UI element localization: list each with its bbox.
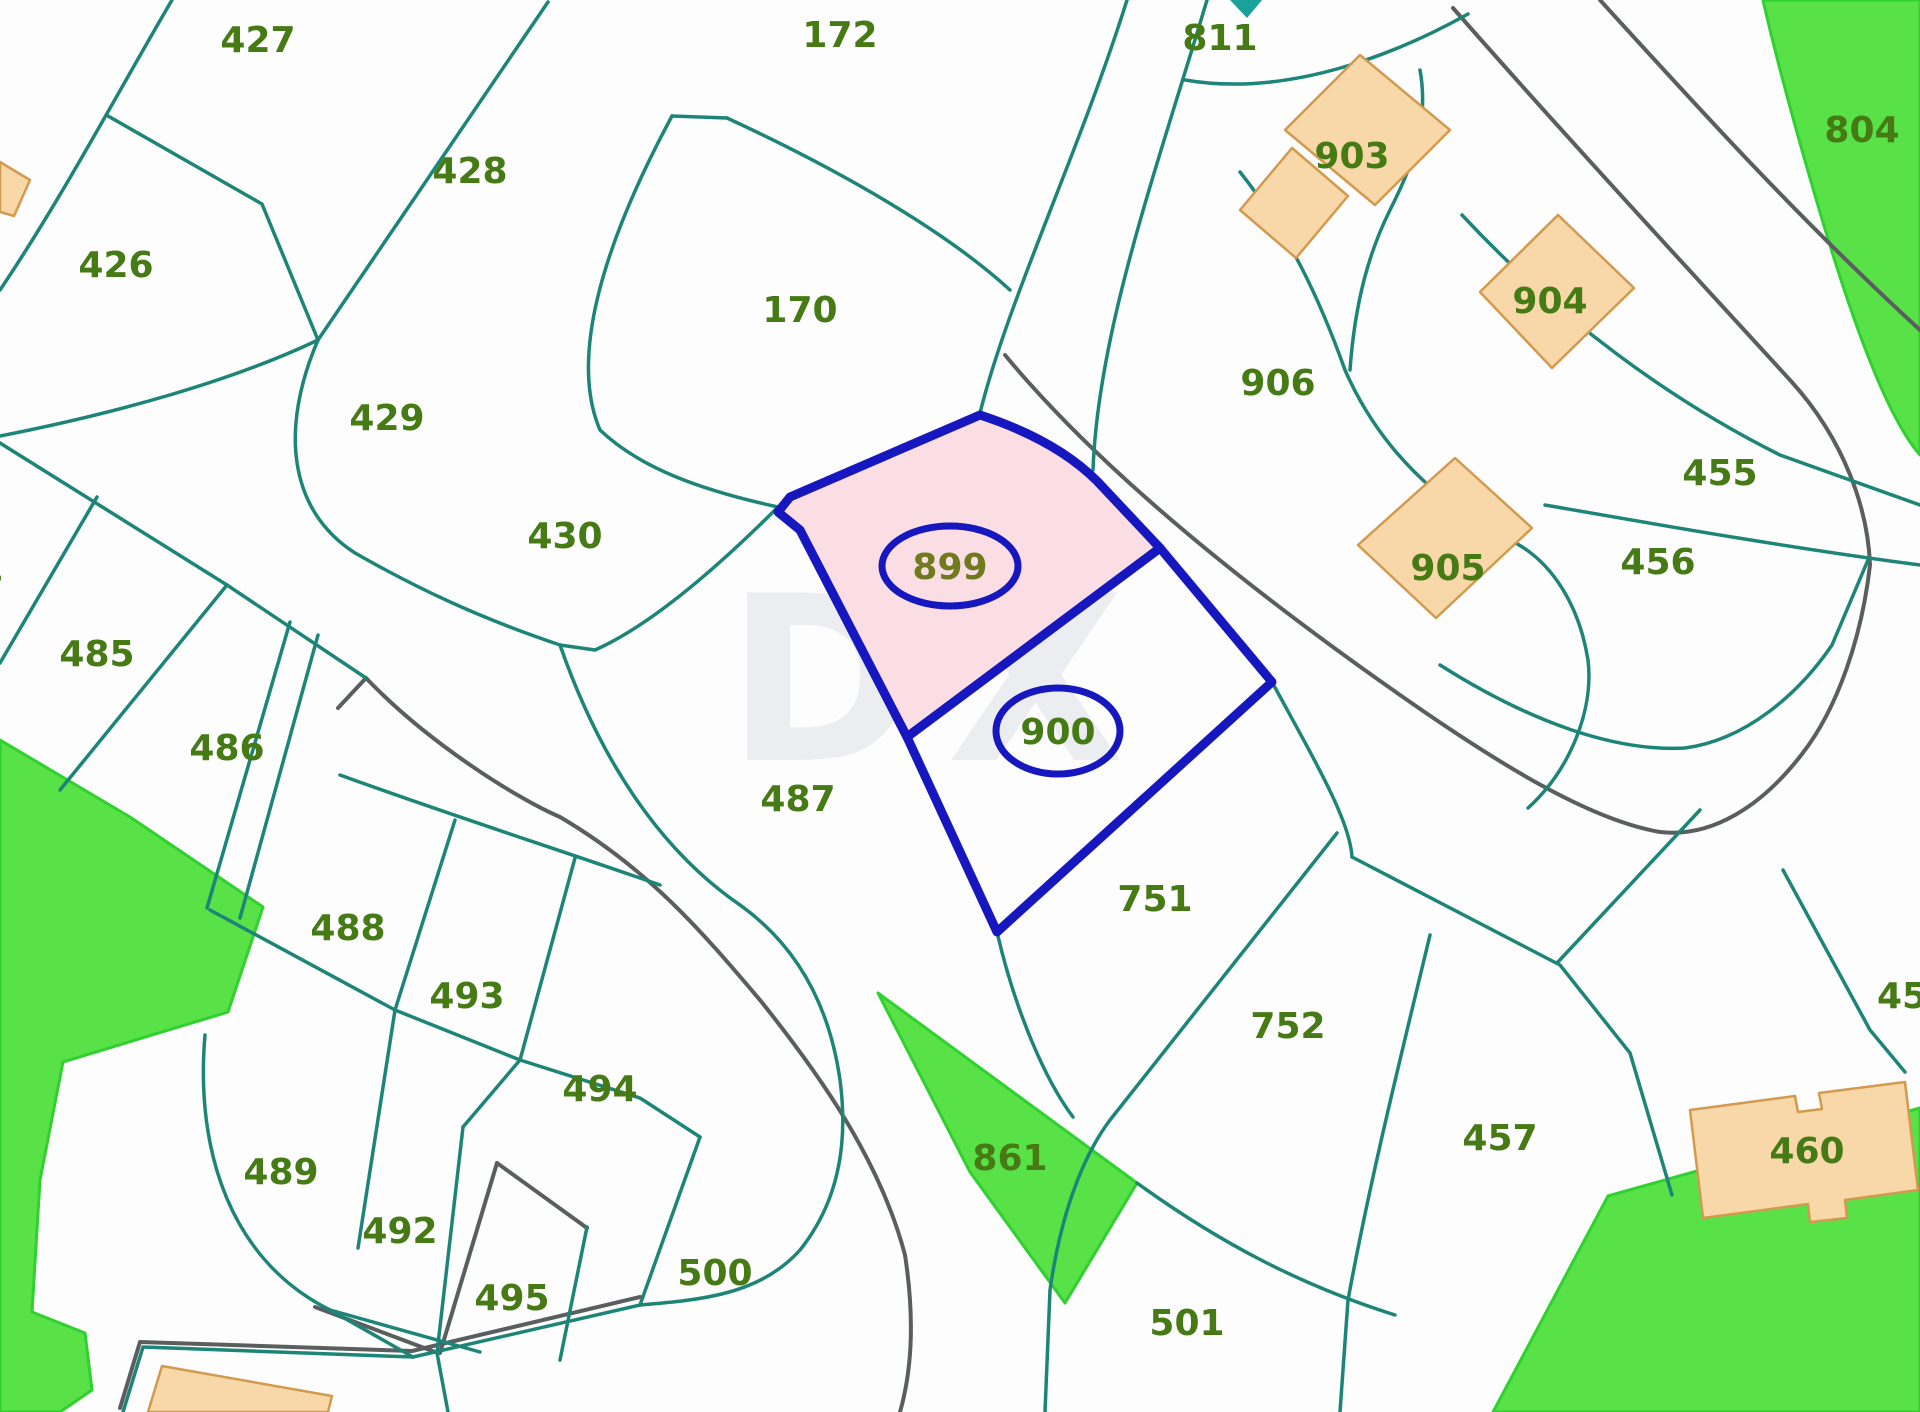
parcel-label-500: 500 [677, 1253, 752, 1294]
parcel-label-487: 487 [760, 779, 835, 820]
parcel-label-457: 457 [1462, 1118, 1537, 1159]
parcel-label-429: 429 [349, 398, 424, 439]
building-edge-left [0, 162, 30, 216]
parcel-label-172: 172 [802, 15, 877, 56]
parcel-label-485: 485 [59, 634, 134, 675]
parcel-label-4: 4 [0, 553, 3, 594]
parcel-label-488: 488 [310, 908, 385, 949]
parcel-label-811: 811 [1182, 18, 1257, 59]
parcel-label-751: 751 [1117, 879, 1192, 920]
parcel-label-804: 804 [1824, 110, 1899, 151]
building-edge-bottom [148, 1366, 332, 1412]
parcel-label-427: 427 [220, 20, 295, 61]
parcel-label-456: 456 [1620, 542, 1695, 583]
parcel-label-861: 861 [972, 1138, 1047, 1179]
parcel-label-501: 501 [1149, 1303, 1224, 1344]
parcel-label-45: 45 [1877, 976, 1920, 1017]
parcel-label-428: 428 [432, 151, 507, 192]
parcel-label-900: 900 [1020, 712, 1095, 753]
parcel-label-906: 906 [1240, 363, 1315, 404]
parcel-label-486: 486 [189, 728, 264, 769]
green-area-804 [1763, 0, 1920, 455]
parcel-label-493: 493 [429, 976, 504, 1017]
cadastral-map: DX 4271728114264289038049041704299064554… [0, 0, 1920, 1412]
parcel-label-904: 904 [1512, 281, 1587, 322]
parcel-label-170: 170 [762, 290, 837, 331]
parcel-label-494: 494 [562, 1069, 637, 1110]
parcel-label-426: 426 [78, 245, 153, 286]
parcel-label-495: 495 [474, 1278, 549, 1319]
survey-mark-icon [1230, 0, 1262, 18]
parcel-label-492: 492 [362, 1211, 437, 1252]
parcel-label-752: 752 [1250, 1006, 1325, 1047]
parcel-label-460: 460 [1769, 1131, 1844, 1172]
parcel-label-430: 430 [527, 516, 602, 557]
parcel-label-903: 903 [1314, 136, 1389, 177]
map-canvas: DX 4271728114264289038049041704299064554… [0, 0, 1920, 1412]
parcel-label-489: 489 [243, 1152, 318, 1193]
parcel-label-905: 905 [1410, 548, 1485, 589]
building-905 [1358, 458, 1532, 618]
parcel-label-899: 899 [912, 547, 987, 588]
green-area-left [0, 740, 263, 1412]
parcel-label-455: 455 [1682, 453, 1757, 494]
